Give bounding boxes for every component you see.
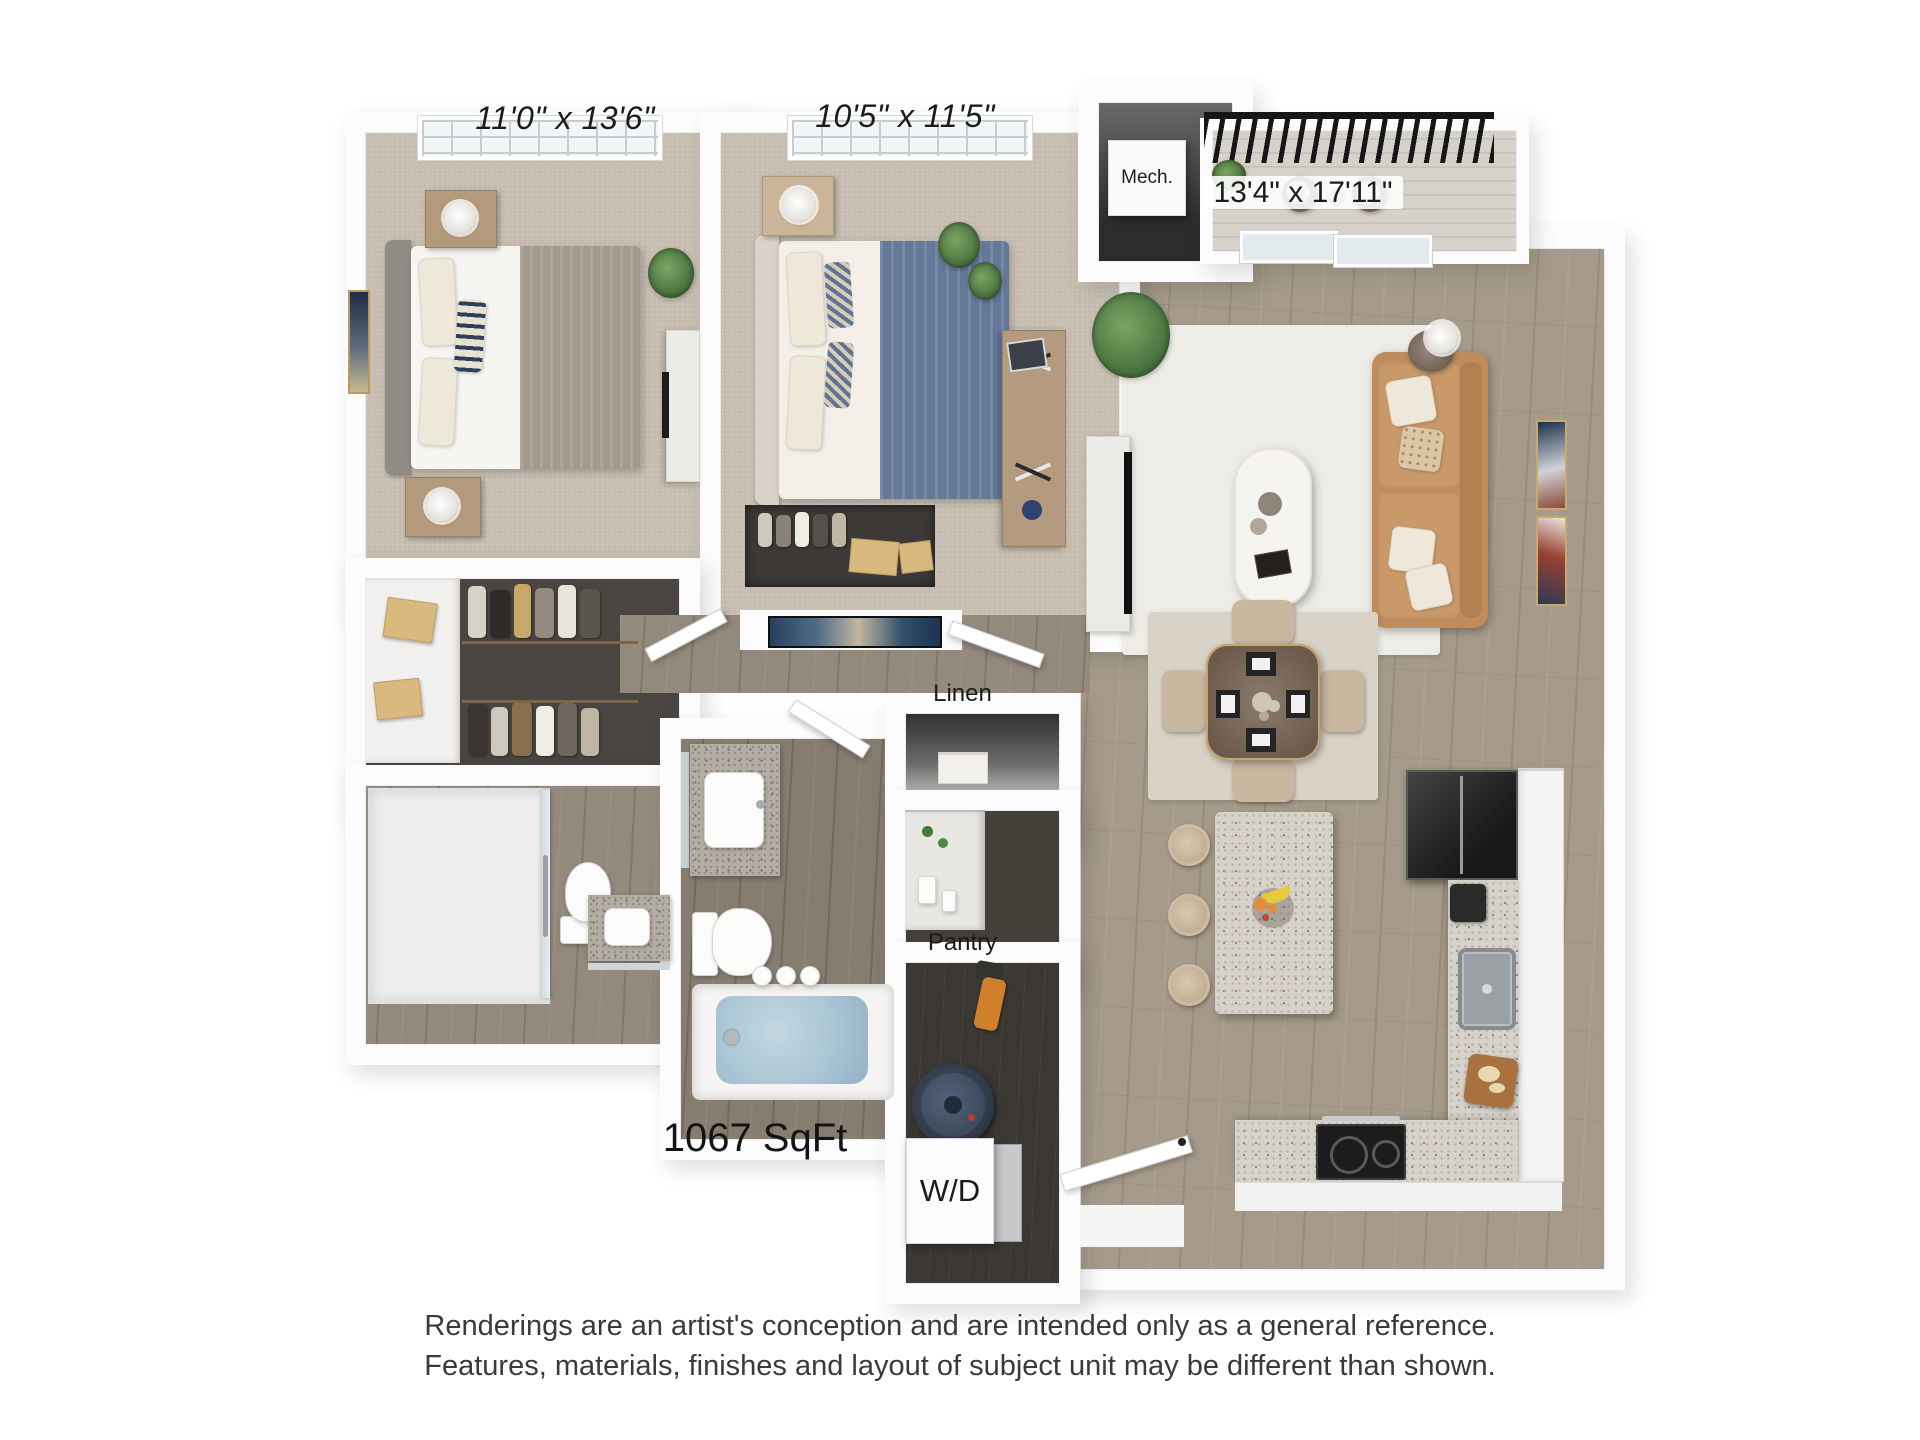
oven-handle <box>1322 1116 1400 1121</box>
table-centerpiece <box>1252 692 1272 712</box>
living-palm-plant <box>1092 292 1170 378</box>
table-lamp <box>782 188 816 222</box>
shower <box>368 788 550 1004</box>
storage-box <box>382 597 437 644</box>
place-setting <box>1216 690 1240 718</box>
balcony-railing <box>1204 112 1494 163</box>
bar-stool <box>1168 824 1210 866</box>
clothing-item <box>468 586 486 638</box>
bedroom2-plant <box>968 262 1002 300</box>
dining-chair <box>1320 670 1364 732</box>
table-lamp <box>426 490 458 522</box>
clothing-item <box>536 706 554 756</box>
clothing-item <box>581 708 599 756</box>
pantry-box <box>942 890 956 912</box>
stove-burner <box>1372 1140 1400 1168</box>
mech-label: Mech. <box>1121 167 1173 189</box>
table-lamp <box>444 202 476 234</box>
bathroom2-mirror <box>681 752 689 868</box>
closet-rod <box>462 700 638 703</box>
disclaimer-line-2: Features, materials, finishes and layout… <box>0 1346 1920 1386</box>
bathtub-water <box>716 996 868 1084</box>
desk-decor <box>1022 500 1042 520</box>
bedroom2-dimensions: 10'5" x 11'5" <box>755 98 1055 135</box>
bed2-headboard <box>755 235 779 505</box>
cabinet-faces <box>1235 1182 1562 1211</box>
clothing-item <box>490 590 510 638</box>
valve-dot <box>968 1114 975 1121</box>
bread <box>1478 1066 1500 1082</box>
floor-lamp <box>1426 322 1458 354</box>
shower-handle <box>543 855 548 937</box>
clothing-item <box>514 584 531 638</box>
closet-rod <box>462 641 638 644</box>
rolled-towel <box>776 966 796 986</box>
bathroom1-mirror <box>588 963 670 970</box>
bedroom1-plant <box>648 248 694 298</box>
oranges <box>1254 898 1267 911</box>
sliding-door-pane <box>1240 231 1338 263</box>
hallway-artwork <box>768 616 942 648</box>
clothing-item <box>558 585 576 638</box>
hanging-clothes-row <box>466 584 638 642</box>
rolled-towel <box>800 966 820 986</box>
dining-chair <box>1232 758 1294 802</box>
square-footage: 1067 SqFt <box>640 1116 870 1161</box>
bed1-blanket <box>520 246 641 469</box>
clothing-item <box>758 513 772 547</box>
clothing-item <box>795 512 809 547</box>
vase <box>1250 518 1267 535</box>
fridge-door-seam <box>1460 776 1463 874</box>
dining-chair <box>1162 670 1206 732</box>
bed2-accent-pillow <box>824 341 855 409</box>
washer-dryer: W/D <box>906 1138 994 1244</box>
dining-chair <box>1232 600 1294 644</box>
towel-stack <box>938 752 988 784</box>
bedroom2-plant <box>938 222 980 268</box>
kitchen-cabinets-right <box>1518 768 1564 1182</box>
clothing-item <box>580 589 600 638</box>
place-setting <box>1286 690 1310 718</box>
bar-stool <box>1168 964 1210 1006</box>
jar <box>922 826 933 837</box>
place-setting <box>1246 652 1276 676</box>
disclaimer: Renderings are an artist's conception an… <box>0 1306 1920 1386</box>
storage-box <box>849 538 900 576</box>
dryer-side <box>990 1144 1022 1242</box>
bathroom1-sink <box>604 908 650 946</box>
coffee-maker <box>1450 884 1486 922</box>
throw-pillow <box>1404 562 1454 612</box>
bed1-accent-pillow <box>454 299 487 373</box>
pantry-box <box>918 876 936 904</box>
clothing-item <box>832 513 846 547</box>
bed2-pillow <box>786 251 827 347</box>
bed2-pillow <box>786 355 827 451</box>
bedroom1-artwork <box>348 290 370 394</box>
stove-burner <box>1330 1136 1368 1174</box>
clothing-item <box>813 514 828 547</box>
clothing-item <box>468 704 487 756</box>
pantry-shelves <box>905 810 985 930</box>
jar <box>938 838 948 848</box>
storage-box <box>898 540 933 574</box>
entry-threshold <box>1080 1205 1184 1247</box>
vase <box>1258 492 1282 516</box>
clothing-item <box>776 515 791 547</box>
faucet <box>756 800 765 809</box>
wall-art <box>1536 420 1567 510</box>
coffee-table <box>1234 448 1312 608</box>
washer-dryer-label: W/D <box>920 1173 980 1209</box>
throw-pillow <box>1384 374 1437 427</box>
sink-drain <box>1482 984 1492 994</box>
bedroom1-dresser <box>666 330 700 482</box>
television <box>1124 452 1132 614</box>
clothing-item <box>491 707 508 756</box>
wall-art <box>1536 516 1567 606</box>
bathroom2-sink <box>704 772 764 848</box>
bed1-pillow <box>418 357 459 447</box>
bedroom1-dimensions: 11'0" x 13'6" <box>415 100 715 137</box>
patterned-pillow <box>1397 425 1444 472</box>
bed1-headboard <box>385 240 411 475</box>
bed2-accent-pillow <box>824 261 855 329</box>
desk-books <box>1006 338 1048 373</box>
water-heater-cap <box>944 1096 962 1114</box>
clothing-item <box>512 702 532 756</box>
door-handle <box>1178 1138 1186 1146</box>
floor-plan-page: Mech. <box>0 0 1920 1440</box>
mech-unit-panel: Mech. <box>1108 140 1186 216</box>
living-dim-text: 13'4" x 17'11" <box>1204 176 1403 209</box>
bedroom1-tv <box>662 372 669 438</box>
place-setting <box>1246 728 1276 752</box>
tub-faucet <box>724 1030 739 1045</box>
pantry-label: Pantry <box>885 929 1040 957</box>
sofa-back <box>1460 362 1482 618</box>
clothing-item <box>558 703 577 756</box>
linen-label: Linen <box>905 680 1020 708</box>
sliding-door-pane <box>1334 235 1432 267</box>
bar-stool <box>1168 894 1210 936</box>
bed1-pillow <box>418 257 459 347</box>
rolled-towel <box>752 966 772 986</box>
living-room-dimensions: 13'4" x 17'11" <box>1178 176 1428 210</box>
storage-box <box>373 678 423 721</box>
clothing-item <box>535 588 554 638</box>
hanging-clothes-row <box>466 702 638 760</box>
disclaimer-line-1: Renderings are an artist's conception an… <box>0 1306 1920 1346</box>
